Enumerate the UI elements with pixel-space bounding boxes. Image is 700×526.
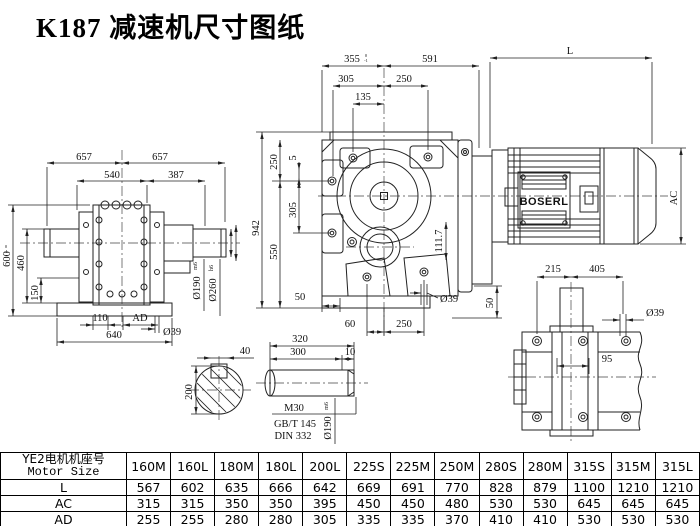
- table-cell: 567: [127, 480, 171, 496]
- table-cell: 255: [171, 512, 215, 526]
- dim-250-left: 250: [269, 154, 280, 170]
- label-std-gbt: GB/T 145: [274, 419, 316, 430]
- table-cell: 642: [303, 480, 347, 496]
- label-std-din: DIN 332: [274, 431, 311, 442]
- label-thread-M30: M30: [284, 403, 304, 414]
- table-row-label: L: [1, 480, 127, 496]
- dim-640: 640: [106, 330, 122, 341]
- dim-40: 40: [240, 346, 251, 357]
- dim-215: 215: [545, 264, 561, 275]
- motor-brand-label: BOSERL: [520, 196, 569, 208]
- dim-50-right: 50: [485, 298, 496, 309]
- table-row-label: AC: [1, 496, 127, 512]
- dim-355: 355: [344, 54, 360, 65]
- dim-550: 550: [269, 244, 280, 260]
- table-header-cell: 250M: [435, 453, 479, 480]
- table-cell: 666: [259, 480, 303, 496]
- table-cell: 315: [171, 496, 215, 512]
- dim-111-7: 111.7: [434, 230, 445, 253]
- dim-591: 591: [422, 54, 438, 65]
- table-cell: 645: [567, 496, 611, 512]
- table-cell: 530: [567, 512, 611, 526]
- main-view: [318, 68, 668, 338]
- table-row-label: AD: [1, 512, 127, 526]
- table-header-cell: 200L: [303, 453, 347, 480]
- front-view-dimensions: 657 657 540 387 600 0 -1 460 150 110: [2, 152, 236, 346]
- dim-540: 540: [104, 170, 120, 181]
- table-header-cell: 180L: [259, 453, 303, 480]
- motor-size-label-en: Motor Size: [1, 466, 126, 479]
- table-cell: 530: [611, 512, 655, 526]
- dim-250-top: 250: [396, 74, 412, 85]
- dim-387: 387: [168, 170, 184, 181]
- table-cell: 669: [347, 480, 391, 496]
- dim-305-left: 305: [288, 202, 299, 218]
- dim-L: L: [567, 46, 573, 57]
- dim-5: 5: [288, 155, 299, 160]
- dim-250-bottom: 250: [396, 319, 412, 330]
- dim-10: 10: [345, 347, 356, 358]
- foot-view: [508, 282, 656, 442]
- table-cell: 370: [435, 512, 479, 526]
- table-cell: 645: [611, 496, 655, 512]
- dim-305-top: 305: [338, 74, 354, 85]
- table-cell: 410: [479, 512, 523, 526]
- dim-150: 150: [30, 285, 41, 301]
- dim-110: 110: [92, 313, 107, 324]
- table-header-cell: 280M: [523, 453, 567, 480]
- dim-135: 135: [355, 92, 371, 103]
- dim-d39-main: Ø39: [440, 294, 458, 305]
- dim-d260-fit: h6: [209, 265, 215, 271]
- table-cell: 691: [391, 480, 435, 496]
- dim-d260: Ø260: [208, 278, 219, 301]
- table-cell: 410: [523, 512, 567, 526]
- table-row: L567602635666642669691770828879110012101…: [1, 480, 700, 496]
- table-cell: 530: [655, 512, 699, 526]
- dim-95: 95: [602, 354, 613, 365]
- table-cell: 1210: [655, 480, 699, 496]
- table-cell: 335: [391, 512, 435, 526]
- table-cell: 635: [215, 480, 259, 496]
- table-header-cell: 315M: [611, 453, 655, 480]
- table-header-row: YE2电机机座号Motor Size160M160L180M180L200L22…: [1, 453, 700, 480]
- table-cell: 335: [347, 512, 391, 526]
- table-cell: 305: [303, 512, 347, 526]
- motor-size-table: YE2电机机座号Motor Size160M160L180M180L200L22…: [0, 452, 700, 526]
- table-header-motor-size: YE2电机机座号Motor Size: [1, 453, 127, 480]
- table-header-cell: 280S: [479, 453, 523, 480]
- table-header-cell: 225M: [391, 453, 435, 480]
- dim-657-left: 657: [76, 152, 92, 163]
- table-cell: 480: [435, 496, 479, 512]
- dim-d39-foot: Ø39: [646, 308, 664, 319]
- table-cell: 530: [523, 496, 567, 512]
- dim-AC: AC: [669, 191, 680, 206]
- dim-657-right: 657: [152, 152, 168, 163]
- table-cell: 255: [127, 512, 171, 526]
- table-row: AD25525528028030533533537041041053053053…: [1, 512, 700, 526]
- shaft-detail: [256, 370, 368, 396]
- table-header-cell: 315S: [567, 453, 611, 480]
- dim-460: 460: [16, 255, 27, 271]
- motor-dimensions: L AC: [490, 46, 686, 244]
- table-cell: 879: [523, 480, 567, 496]
- dim-d190-fit: m6: [193, 262, 199, 270]
- foot-view-dimensions: 215 405 Ø39 95: [537, 264, 664, 374]
- dim-600-tol-dn: -1: [4, 249, 8, 254]
- dim-60: 60: [345, 319, 356, 330]
- dim-d190-shaft-fit: m6: [324, 402, 330, 410]
- table-cell: 1210: [611, 480, 655, 496]
- dim-355-tol-dn: -1: [364, 58, 368, 63]
- table-header-cell: 180M: [215, 453, 259, 480]
- table-cell: 1100: [567, 480, 611, 496]
- shaft-detail-dimensions: 320 300 10 M30 GB/T 145 DIN 332 Ø190 m6: [270, 334, 356, 444]
- dim-942: 942: [251, 220, 262, 236]
- table-cell: 450: [347, 496, 391, 512]
- table-cell: 450: [391, 496, 435, 512]
- table-cell: 770: [435, 480, 479, 496]
- table-cell: 350: [215, 496, 259, 512]
- dim-50-bottomleft: 50: [295, 292, 306, 303]
- table-cell: 530: [479, 496, 523, 512]
- dim-d190-shaft: Ø190: [323, 416, 334, 439]
- dim-200: 200: [184, 384, 195, 400]
- table-row: AC31531535035039545045048053053064564564…: [1, 496, 700, 512]
- table-cell: 645: [655, 496, 699, 512]
- main-view-dimensions: 355 0 -1 591 305 250 135 942 250 550 5: [251, 53, 502, 336]
- table-cell: 315: [127, 496, 171, 512]
- table-header-cell: 160M: [127, 453, 171, 480]
- table-cell: 350: [259, 496, 303, 512]
- table-header-cell: 160L: [171, 453, 215, 480]
- table-cell: 395: [303, 496, 347, 512]
- table-header-cell: 225S: [347, 453, 391, 480]
- dim-320: 320: [292, 334, 308, 345]
- dim-405: 405: [589, 264, 605, 275]
- dim-d190: Ø190: [192, 276, 203, 299]
- table-cell: 280: [259, 512, 303, 526]
- table-cell: 602: [171, 480, 215, 496]
- table-header-cell: 315L: [655, 453, 699, 480]
- technical-drawing: 657 657 540 387 600 0 -1 460 150 110: [0, 0, 700, 452]
- drawing-sheet: K187 减速机尺寸图纸: [0, 0, 700, 526]
- table-cell: 828: [479, 480, 523, 496]
- dim-AD: AD: [132, 313, 148, 324]
- dim-300: 300: [290, 347, 306, 358]
- table-cell: 280: [215, 512, 259, 526]
